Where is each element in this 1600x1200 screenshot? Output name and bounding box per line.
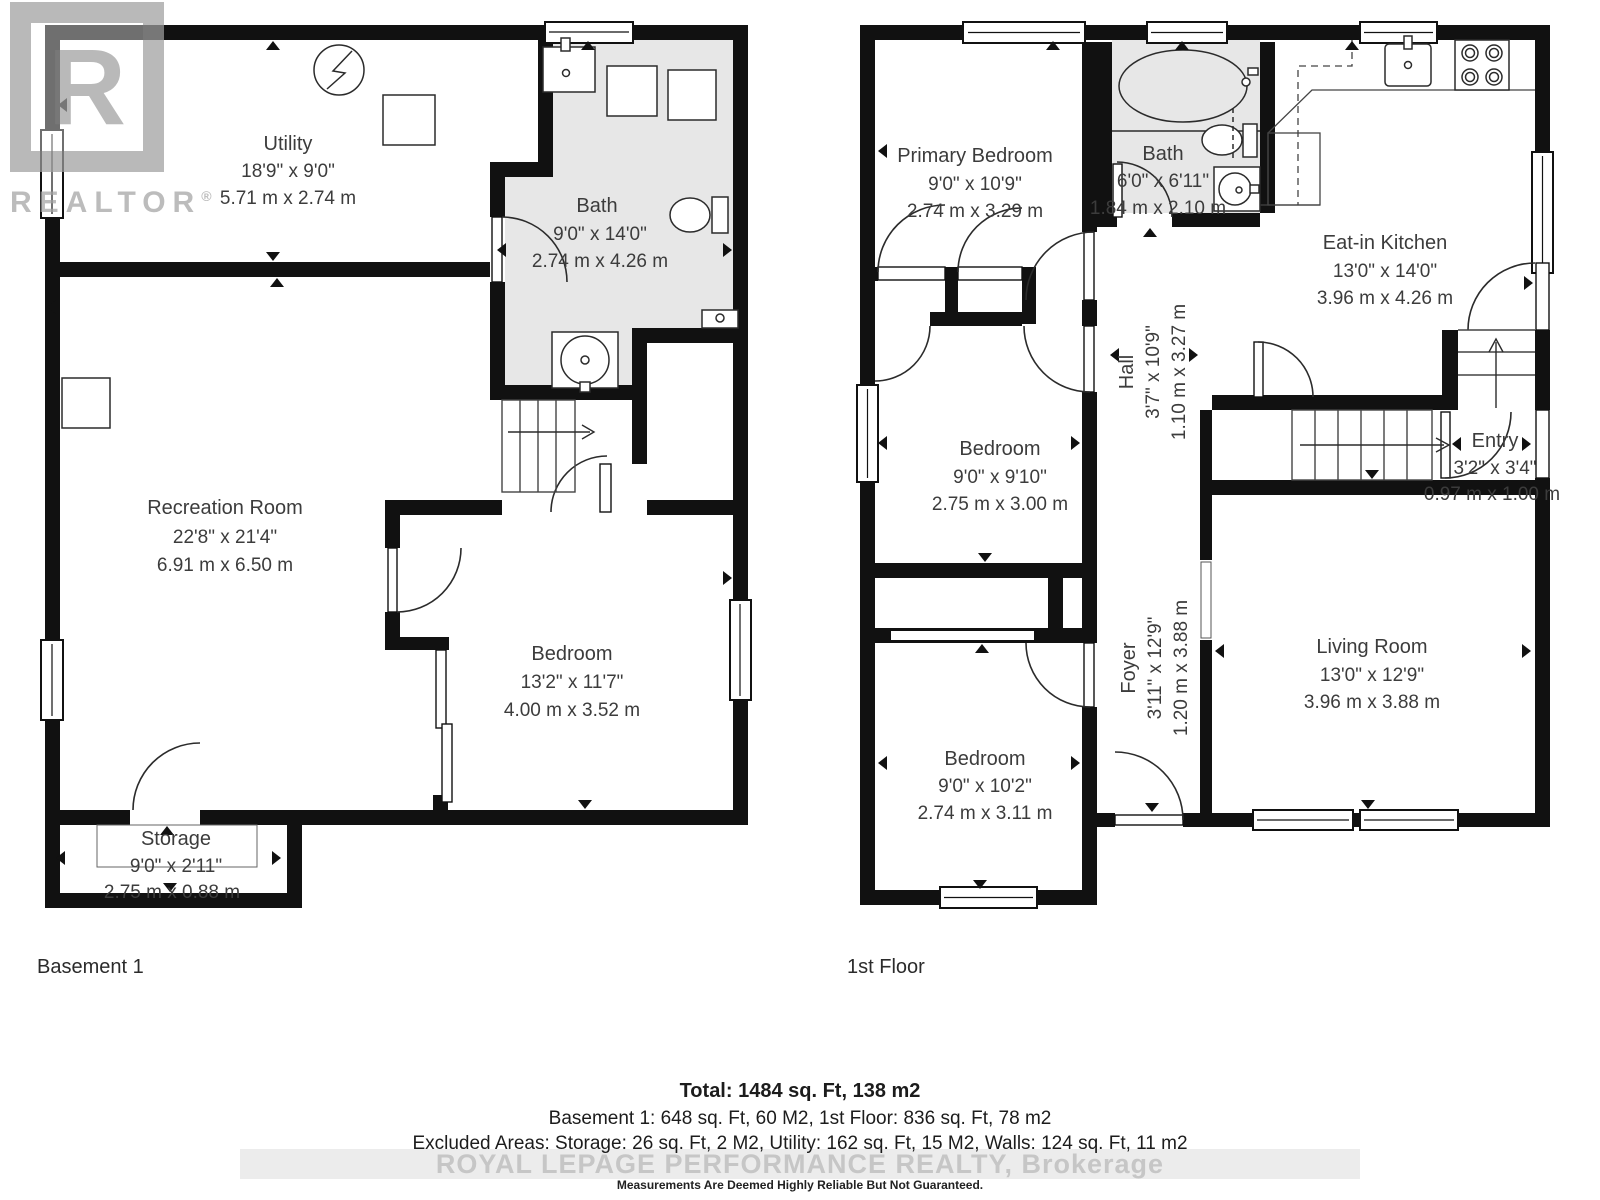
room-dims-imperial: 9'0" x 14'0": [553, 224, 647, 245]
shelf-icon: [62, 378, 110, 428]
marker-arrow: [878, 756, 887, 770]
faucet-icon: [716, 314, 724, 322]
room-dims-imperial: 13'0" x 12'9": [1320, 665, 1424, 686]
basement-stairs: [502, 400, 594, 492]
stove-icon: [1455, 40, 1509, 90]
door-leaf: [1254, 342, 1263, 397]
closet-door-leaf: [878, 267, 945, 280]
door-leaf: [388, 548, 397, 612]
wall-segment: [385, 500, 502, 515]
wall-segment: [287, 810, 748, 825]
plan-line: [1490, 49, 1499, 58]
room-name: Foyer: [1118, 642, 1140, 693]
room-label-middle-bedroom: Bedroom 9'0" x 9'10" 2.75 m x 3.00 m: [932, 438, 1068, 515]
marker-arrow: [1452, 437, 1461, 451]
plan-line: [1490, 73, 1499, 82]
marker-arrow: [270, 278, 284, 287]
floorplan-page: Utility 18'9" x 9'0" 5.71 m x 2.74 m Bat…: [0, 0, 1600, 1200]
excluded-areas-line: Excluded Areas: Storage: 26 sq. Ft, 2 M2…: [0, 1133, 1600, 1155]
door-opening: [875, 312, 930, 326]
marker-arrow: [1524, 276, 1533, 290]
toilet-bowl-icon: [1202, 125, 1242, 155]
marker-arrow: [266, 252, 280, 261]
wall-segment: [45, 810, 130, 825]
door-leaf: [1084, 326, 1094, 392]
door-swing: [1258, 342, 1313, 397]
marker-arrow: [272, 851, 281, 865]
faucet-icon: [1404, 36, 1412, 49]
marker-arrow: [578, 800, 592, 809]
shower-base-icon: [668, 70, 716, 120]
wall-segment: [200, 810, 287, 825]
wall-segment: [1183, 813, 1200, 827]
room-name: Hall: [1116, 355, 1138, 389]
room-dims-imperial: 3'7" x 10'9": [1143, 325, 1164, 419]
door-leaf: [1084, 232, 1094, 300]
marker-arrow: [1522, 437, 1531, 451]
room-name: Storage: [141, 828, 211, 850]
room-name: Bedroom: [944, 748, 1025, 770]
room-dims-metric: 2.74 m x 4.26 m: [532, 251, 668, 272]
door-sidelite: [1536, 410, 1549, 478]
faucet-icon: [1242, 78, 1250, 86]
room-dims-imperial: 22'8" x 21'4": [173, 527, 277, 548]
wall-segment: [733, 25, 748, 825]
door-opening: [130, 810, 200, 825]
toilet-tank-icon: [1243, 124, 1257, 157]
faucet-icon: [1248, 68, 1258, 75]
wall-segment: [632, 400, 647, 464]
wall-segment: [287, 825, 302, 908]
room-label-living-room: Living Room 13'0" x 12'9" 3.96 m x 3.88 …: [1304, 636, 1440, 713]
marker-arrow: [266, 41, 280, 50]
marker-arrow: [978, 553, 992, 562]
room-dims-metric: 5.71 m x 2.74 m: [220, 188, 356, 209]
wall-segment: [490, 162, 505, 217]
room-dims-metric: 1.84 m x 2.10 m: [1090, 198, 1226, 219]
room-name: Bath: [576, 195, 617, 217]
wall-segment: [647, 500, 748, 515]
room-dims-imperial: 13'2" x 11'7": [521, 672, 624, 693]
room-label-primary-bedroom: Primary Bedroom 9'0" x 10'9" 2.74 m x 3.…: [897, 145, 1053, 222]
faucet-icon: [1250, 185, 1259, 193]
room-name: Bedroom: [959, 438, 1040, 460]
toilet-tank-icon: [712, 197, 728, 233]
room-dims-metric: 0.97 m x 1.00 m: [1424, 484, 1560, 505]
wall-segment: [490, 282, 505, 400]
drain-icon: [563, 70, 570, 77]
door-swing: [1468, 263, 1535, 330]
room-label-utility: Utility 18'9" x 9'0" 5.71 m x 2.74 m: [220, 133, 356, 209]
room-dims-imperial: 3'11" x 12'9": [1145, 617, 1166, 720]
room-name: Living Room: [1316, 636, 1427, 658]
wall-segment: [1535, 478, 1550, 827]
room-dims-imperial: 3'2" x 3'4": [1453, 458, 1536, 479]
marker-arrow: [1071, 756, 1080, 770]
wall-segment: [1535, 330, 1550, 410]
marker-arrow: [723, 571, 732, 585]
door-swing: [1115, 752, 1183, 820]
cased-opening: [1201, 562, 1211, 638]
basement-plan: Utility 18'9" x 9'0" 5.71 m x 2.74 m Bat…: [37, 22, 751, 978]
room-dims-metric: 2.75 m x 0.88 m: [104, 882, 240, 903]
room-dims-imperial: 9'0" x 10'2": [938, 776, 1032, 797]
room-dims-metric: 2.74 m x 3.29 m: [907, 201, 1043, 222]
wall-segment: [1200, 640, 1212, 813]
sliding-door-panel: [442, 724, 452, 802]
door-swing: [1026, 643, 1090, 707]
disclaimer-line: Measurements Are Deemed Highly Reliable …: [0, 1178, 1600, 1192]
room-dims-metric: 2.75 m x 3.00 m: [932, 494, 1068, 515]
faucet-icon: [561, 38, 570, 51]
door-leaf: [1115, 815, 1183, 825]
room-label-hall: Hall 3'7" x 10'9" 1.10 m x 3.27 m: [1116, 304, 1190, 440]
floorplan-drawing: Utility 18'9" x 9'0" 5.71 m x 2.74 m Bat…: [0, 0, 1600, 1200]
room-label-foyer: Foyer 3'11" x 12'9" 1.20 m x 3.88 m: [1118, 600, 1192, 736]
utility-tank-icon: [383, 95, 435, 145]
wall-segment: [1082, 300, 1097, 326]
room-dims-imperial: 9'0" x 9'10": [953, 467, 1047, 488]
wall-segment: [1200, 410, 1212, 560]
room-dims-metric: 3.96 m x 3.88 m: [1304, 692, 1440, 713]
wall-segment: [860, 312, 875, 326]
marker-arrow: [878, 436, 887, 450]
bath-sink-icon: [543, 47, 595, 92]
marker-arrow: [1345, 41, 1359, 50]
plan-line: [1466, 73, 1475, 82]
shower-control-icon: [580, 382, 590, 392]
marker-arrow: [878, 144, 887, 158]
room-name: Utility: [264, 133, 313, 155]
room-label-bottom-bedroom: Bedroom 9'0" x 10'2" 2.74 m x 3.11 m: [918, 748, 1053, 824]
room-dims-imperial: 13'0" x 14'0": [1333, 261, 1437, 282]
marker-arrow: [1145, 803, 1159, 812]
drain-icon: [1405, 62, 1412, 69]
wall-segment: [1442, 330, 1458, 410]
sliding-door-panel: [436, 650, 446, 728]
closet-door-leaf: [958, 267, 1022, 280]
electrical-panel-icon: [314, 45, 364, 95]
room-name: Bath: [1142, 143, 1183, 165]
marker-arrow: [1071, 436, 1080, 450]
closet-sliding-door: [890, 630, 1035, 641]
basement-floor-label: Basement 1: [37, 956, 144, 978]
room-name: Recreation Room: [147, 497, 303, 519]
marker-arrow: [1522, 644, 1531, 658]
wall-segment: [1097, 813, 1115, 827]
room-dims-imperial: 18'9" x 9'0": [241, 161, 335, 182]
toilet-bowl-icon: [670, 198, 710, 232]
room-dims-imperial: 9'0" x 10'9": [928, 174, 1022, 195]
room-dims-metric: 2.74 m x 3.11 m: [918, 803, 1053, 824]
room-label-recreation-room: Recreation Room 22'8" x 21'4" 6.91 m x 6…: [147, 497, 303, 576]
door-swing: [1024, 326, 1090, 392]
wall-segment: [1212, 395, 1442, 410]
room-name: Entry: [1472, 430, 1519, 452]
shower-base-icon: [607, 66, 657, 116]
room-name: Bedroom: [531, 643, 612, 665]
marker-arrow: [1215, 644, 1224, 658]
first-floor-label: 1st Floor: [847, 956, 925, 978]
door-leaf: [600, 464, 611, 512]
room-dims-metric: 3.96 m x 4.26 m: [1317, 288, 1453, 309]
drain-icon: [1236, 187, 1242, 193]
wall-segment: [45, 262, 490, 277]
counter-edge: [1268, 90, 1535, 205]
wall-segment: [1082, 707, 1097, 905]
wall-segment: [385, 637, 449, 650]
floor-areas-line: Basement 1: 648 sq. Ft, 60 M2, 1st Floor…: [0, 1108, 1600, 1130]
room-label-storage: Storage 9'0" x 2'11" 2.75 m x 0.88 m: [104, 828, 240, 903]
wall-segment: [1082, 392, 1097, 643]
upper-cabinets-dashed: [1298, 40, 1352, 205]
room-label-basement-bedroom: Bedroom 13'2" x 11'7" 4.00 m x 3.52 m: [504, 643, 640, 721]
wall-segment: [632, 328, 647, 400]
door-leaf: [1536, 263, 1549, 330]
drain-icon: [581, 356, 589, 364]
door-swing: [551, 456, 607, 512]
room-dims-metric: 1.10 m x 3.27 m: [1169, 304, 1190, 440]
wall-segment: [385, 500, 400, 548]
marker-arrow: [1361, 800, 1375, 809]
counter-block: [1268, 133, 1320, 205]
wall-segment: [1048, 578, 1063, 628]
total-area-line: Total: 1484 sq. Ft, 138 m2: [0, 1080, 1600, 1103]
plan-line: [1466, 49, 1475, 58]
door-leaf: [1084, 643, 1094, 707]
door-swing: [397, 548, 461, 612]
room-dims-imperial: 9'0" x 2'11": [130, 856, 222, 877]
room-name: Primary Bedroom: [897, 145, 1053, 167]
door-swing: [875, 326, 930, 381]
door-swing: [133, 743, 200, 810]
marker-arrow: [1365, 470, 1379, 479]
room-dims-imperial: 6'0" x 6'11": [1117, 171, 1209, 192]
room-dims-metric: 4.00 m x 3.52 m: [504, 700, 640, 721]
first-floor-plan: Primary Bedroom 9'0" x 10'9" 2.74 m x 3.…: [847, 22, 1560, 978]
marker-arrow: [1189, 348, 1198, 362]
wall-segment: [647, 328, 748, 343]
marker-arrow: [975, 644, 989, 653]
wall-segment: [1097, 42, 1112, 213]
wall-segment: [860, 267, 878, 281]
wall-segment: [860, 563, 1097, 578]
room-name: Eat-in Kitchen: [1323, 232, 1448, 254]
room-dims-metric: 6.91 m x 6.50 m: [157, 555, 293, 576]
room-dims-metric: 1.20 m x 3.88 m: [1171, 600, 1192, 736]
marker-arrow: [1143, 228, 1157, 237]
wall-segment: [45, 25, 748, 40]
room-label-eat-in-kitchen: Eat-in Kitchen 13'0" x 14'0" 3.96 m x 4.…: [1317, 232, 1453, 309]
wall-segment: [930, 312, 1022, 326]
wall-segment: [1022, 267, 1036, 324]
